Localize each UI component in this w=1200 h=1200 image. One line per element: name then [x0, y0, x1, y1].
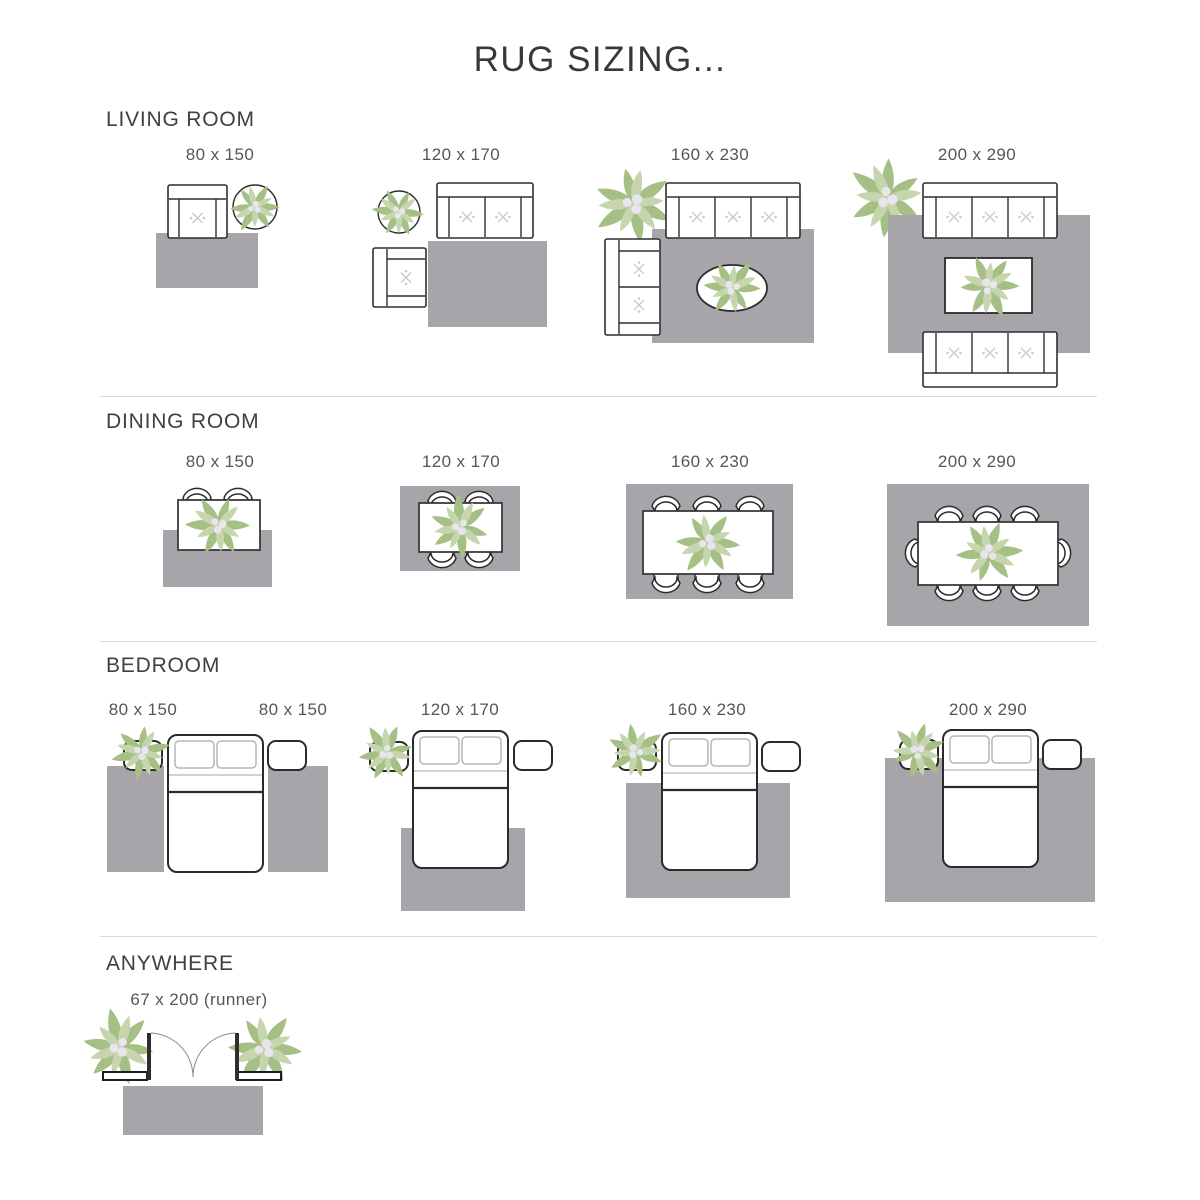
bedroom-diagram-160x230	[613, 722, 805, 907]
page-title: RUG SIZING...	[0, 40, 1200, 80]
bed-icon	[943, 730, 1038, 867]
section-header-anywhere: ANYWHERE	[106, 952, 234, 976]
bedroom-diagram-200x290	[872, 722, 1105, 907]
size-label: 160 x 230	[610, 452, 810, 472]
dining-room-diagram-120x170	[395, 478, 530, 583]
dining-room-diagram-200x290	[880, 476, 1100, 634]
bedroom-diagram-two-runners	[100, 723, 335, 880]
plant-icon	[69, 995, 170, 1098]
section-divider	[100, 396, 1097, 397]
section-divider	[100, 641, 1097, 642]
section-header-bedroom: BEDROOM	[106, 654, 220, 678]
rug-shape	[123, 1086, 263, 1135]
dining-room-diagram-80x150	[155, 475, 280, 595]
sofa-icon	[923, 183, 1057, 238]
plant-icon	[217, 1001, 311, 1098]
nightstand-icon	[1043, 740, 1081, 769]
door-icon	[147, 1033, 151, 1080]
living-room-diagram-120x170	[363, 172, 563, 332]
section-divider	[100, 936, 1097, 937]
sofa-icon	[437, 183, 533, 238]
armchair-icon	[168, 185, 227, 238]
bed-icon	[168, 735, 263, 872]
rug-shape	[107, 766, 164, 872]
bed-icon	[662, 733, 757, 870]
size-label: 120 x 170	[361, 452, 561, 472]
living-room-diagram-80x150	[145, 172, 285, 294]
section-header-living-room: LIVING ROOM	[106, 108, 255, 132]
door-swing-arc	[151, 1033, 193, 1077]
nightstand-icon	[762, 742, 800, 771]
size-label: 160 x 230	[610, 145, 810, 165]
sofa-icon	[605, 239, 660, 335]
rug-shape	[156, 233, 258, 288]
wall-shape	[103, 1072, 147, 1080]
size-label: 80 x 150	[120, 452, 320, 472]
door-icon	[235, 1033, 239, 1080]
size-label: 80 x 150	[120, 145, 320, 165]
door-swing-arc	[193, 1033, 235, 1077]
nightstand-icon	[514, 741, 552, 770]
size-label: 200 x 290	[877, 452, 1077, 472]
rug-shape	[428, 241, 547, 327]
bedroom-diagram-120x170	[360, 722, 565, 917]
dining-room-diagram-160x230	[618, 478, 803, 608]
size-label: 160 x 230	[607, 700, 807, 720]
size-label: 67 x 200 (runner)	[99, 990, 299, 1010]
sofa-icon	[666, 183, 800, 238]
bed-icon	[413, 731, 508, 868]
wall-shape	[237, 1072, 281, 1080]
living-room-diagram-200x290	[853, 160, 1105, 395]
size-label: 120 x 170	[360, 700, 560, 720]
sofa-icon	[923, 332, 1057, 387]
rug-shape	[268, 766, 328, 872]
section-header-dining-room: DINING ROOM	[106, 410, 259, 434]
armchair-icon	[373, 248, 426, 307]
anywhere-diagram-runner	[95, 1018, 295, 1145]
size-label: 200 x 290	[888, 700, 1088, 720]
nightstand-icon	[268, 741, 306, 770]
rug-sizing-guide: RUG SIZING... LIVING ROOM 80 x 150 120 x…	[0, 0, 1200, 1200]
living-room-diagram-160x230	[593, 163, 828, 353]
size-label: 120 x 170	[361, 145, 561, 165]
